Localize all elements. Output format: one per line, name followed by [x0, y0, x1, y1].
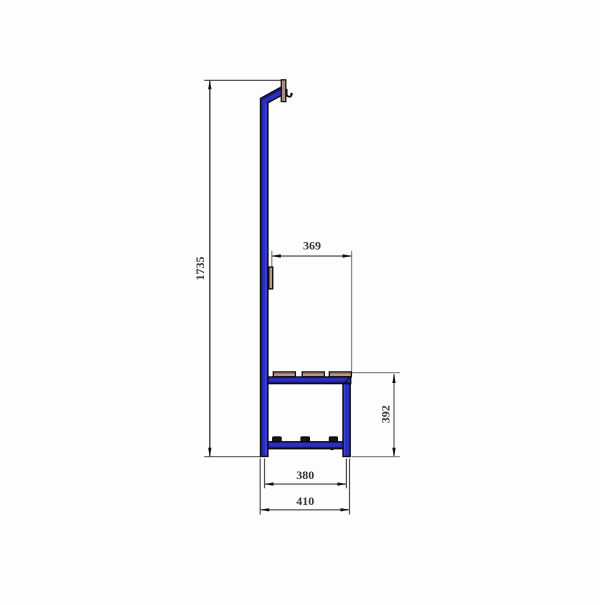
- svg-text:392: 392: [379, 405, 393, 423]
- svg-text:380: 380: [296, 468, 314, 482]
- svg-text:410: 410: [296, 494, 314, 508]
- svg-text:1735: 1735: [193, 257, 207, 281]
- svg-text:369: 369: [303, 239, 321, 253]
